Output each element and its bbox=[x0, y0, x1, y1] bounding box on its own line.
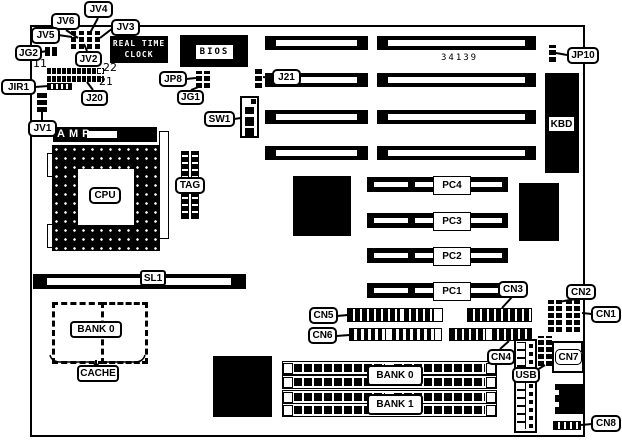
usb-connector bbox=[514, 339, 537, 433]
sw1-block-3 bbox=[245, 128, 254, 136]
jumper-jv6 bbox=[79, 31, 84, 49]
rtc-chip: REAL TIME CLOCK bbox=[110, 36, 168, 63]
tag-label: TAG bbox=[175, 177, 205, 194]
isa-slot-4-right bbox=[377, 146, 536, 160]
header-cn3 bbox=[467, 308, 532, 322]
isa-slot-2-right bbox=[377, 73, 536, 87]
callout-jv2: JV2 bbox=[75, 51, 102, 67]
chipset-qfp-1 bbox=[293, 176, 351, 236]
callout-cn6: CN6 bbox=[308, 327, 337, 344]
header-cn6 bbox=[349, 328, 442, 341]
callout-jp8: JP8 bbox=[159, 71, 187, 87]
keyboard-connector: KBD bbox=[545, 73, 579, 173]
callout-jg2: JG2 bbox=[15, 45, 42, 61]
isa-slot-1-right bbox=[377, 36, 536, 50]
callout-cn1: CN1 bbox=[591, 306, 621, 323]
isa-slot-3-left bbox=[265, 110, 368, 124]
header-cn8 bbox=[553, 421, 581, 430]
callout-usb: USB bbox=[512, 367, 540, 383]
jumper-jp8-a bbox=[196, 71, 202, 88]
sw1-indicator bbox=[251, 99, 256, 104]
kbd-label: KBD bbox=[548, 116, 575, 132]
callout-j21: J21 bbox=[272, 69, 301, 86]
header-cn5 bbox=[347, 308, 443, 322]
jumper-jv5 bbox=[71, 31, 76, 49]
callout-jg1: JG1 bbox=[177, 90, 204, 105]
header-cn1 bbox=[566, 300, 581, 332]
callout-j20: J20 bbox=[81, 90, 108, 106]
pci-slot-pc4: PC4 bbox=[367, 177, 508, 192]
pci-slot-pc2: PC2 bbox=[367, 248, 508, 263]
amp-bar-notch bbox=[87, 131, 117, 138]
callout-jv3: JV3 bbox=[111, 19, 140, 36]
header-j20 bbox=[47, 67, 104, 82]
isa-slot-3-right bbox=[377, 110, 536, 124]
j20-pin-21: 21 bbox=[99, 75, 113, 88]
pc2-label: PC2 bbox=[433, 247, 471, 266]
jumper-jv1 bbox=[37, 93, 47, 112]
callout-jv1: JV1 bbox=[28, 120, 57, 137]
callout-cn4: CN4 bbox=[487, 349, 515, 365]
jumper-jv3 bbox=[95, 31, 100, 49]
simm-bank1-label: BANK 1 bbox=[367, 394, 423, 415]
callout-cn7: CN7 bbox=[555, 349, 582, 365]
cn7-tab bbox=[581, 343, 585, 352]
jumper-j21 bbox=[255, 67, 262, 88]
cache-bank0-label: BANK 0 bbox=[70, 321, 122, 338]
callout-cn5: CN5 bbox=[309, 307, 338, 324]
socket-tab-bottom bbox=[47, 224, 53, 248]
motherboard-layout-diagram: 11 22 21 REAL TIME CLOCK BIOS 34139 KBD … bbox=[0, 0, 622, 442]
callout-jp10: JP10 bbox=[567, 47, 599, 64]
socket-tab-top bbox=[47, 153, 53, 177]
cache-label: CACHE bbox=[77, 365, 119, 382]
sl1-label: SL1 bbox=[140, 270, 166, 286]
jumper-jv4 bbox=[87, 31, 92, 49]
sw1-block-2 bbox=[245, 117, 254, 126]
isa-slot-1-left bbox=[265, 36, 368, 50]
j20-pin-22: 22 bbox=[103, 61, 117, 74]
zif-lever bbox=[159, 131, 169, 239]
dip-switch-sw1 bbox=[240, 96, 259, 138]
jumper-jp8-b bbox=[204, 71, 210, 88]
pc3-label: PC3 bbox=[433, 212, 471, 231]
jumper-jg2 bbox=[45, 47, 58, 56]
chipset-qfp-2 bbox=[519, 183, 559, 241]
callout-jv5: JV5 bbox=[31, 27, 60, 44]
callout-cn3: CN3 bbox=[498, 281, 528, 298]
pc1-label: PC1 bbox=[433, 282, 471, 301]
usb-pin-header bbox=[538, 336, 552, 366]
part-number: 34139 bbox=[441, 53, 478, 63]
mouse-connector bbox=[555, 384, 584, 414]
simm-bank0-label: BANK 0 bbox=[367, 365, 423, 386]
isa-slot-4-left bbox=[265, 146, 368, 160]
sw1-block-1 bbox=[245, 107, 254, 114]
callout-jv4: JV4 bbox=[84, 1, 113, 18]
cpu-label: CPU bbox=[89, 187, 121, 204]
callout-jir1: JIR1 bbox=[1, 79, 36, 95]
pc4-label: PC4 bbox=[433, 176, 471, 195]
chipset-qfp-3 bbox=[213, 356, 272, 417]
jumper-jp10 bbox=[549, 45, 556, 62]
callout-cn2: CN2 bbox=[566, 284, 596, 300]
pci-slot-pc1: PC1 bbox=[367, 283, 508, 298]
callout-sw1: SW1 bbox=[204, 111, 235, 127]
pci-slot-pc3: PC3 bbox=[367, 213, 508, 228]
callout-cn8: CN8 bbox=[591, 415, 621, 432]
bios-chip: BIOS bbox=[180, 35, 248, 67]
bios-label: BIOS bbox=[196, 45, 233, 59]
header-cn2 bbox=[548, 300, 563, 332]
header-jir1 bbox=[47, 83, 72, 90]
